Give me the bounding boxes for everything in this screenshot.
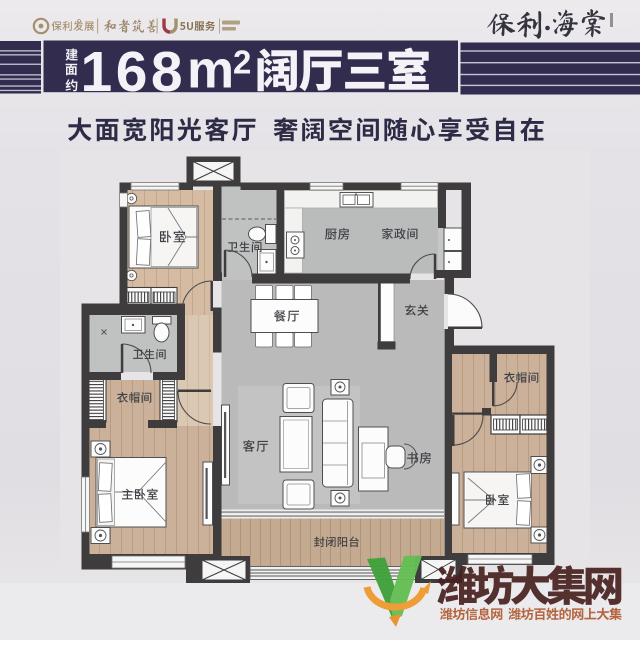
svg-text:168: 168 xyxy=(81,40,187,104)
svg-text:2: 2 xyxy=(233,44,251,81)
svg-text:m: m xyxy=(187,41,234,100)
